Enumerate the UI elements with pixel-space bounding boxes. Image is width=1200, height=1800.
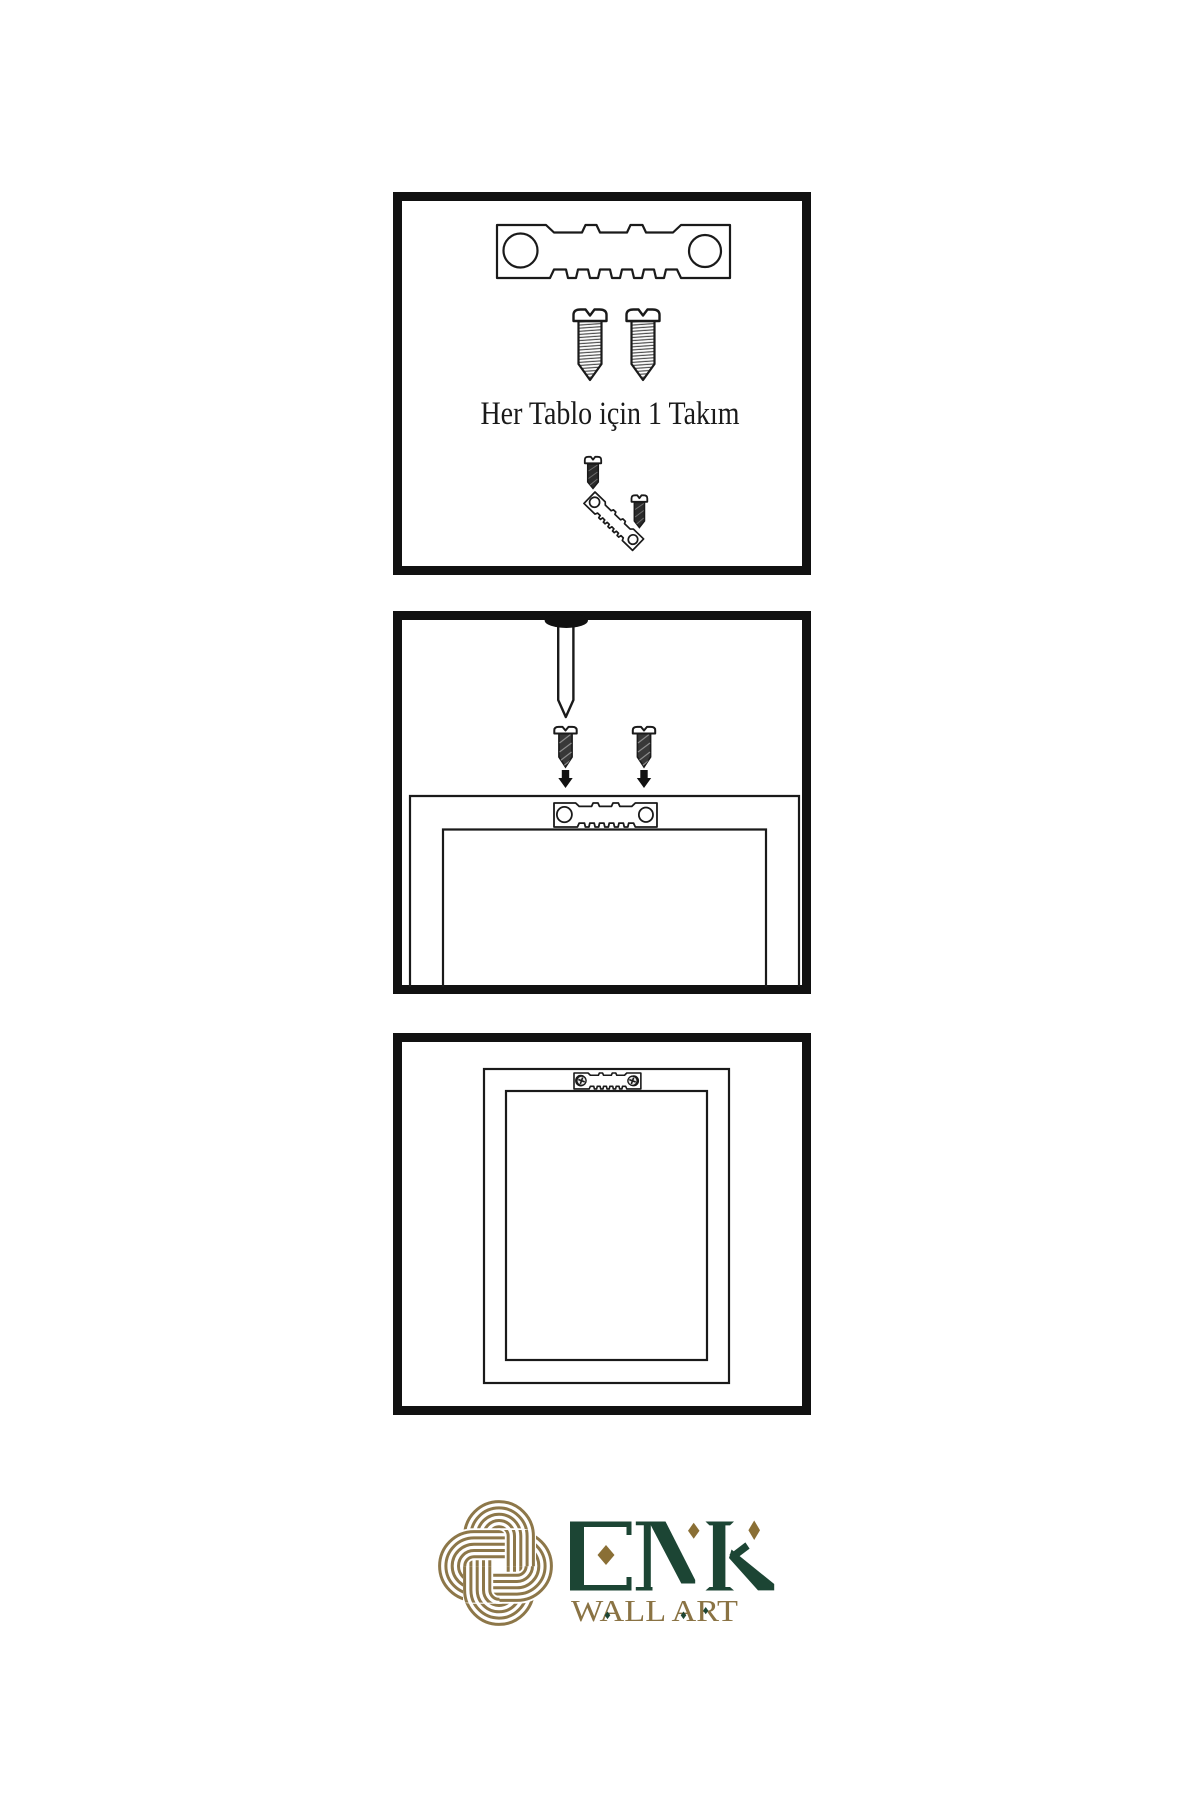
svg-text:Her Tablo için 1 Takım: Her Tablo için 1 Takım xyxy=(481,396,740,432)
svg-text:WALL ART: WALL ART xyxy=(571,1593,738,1628)
